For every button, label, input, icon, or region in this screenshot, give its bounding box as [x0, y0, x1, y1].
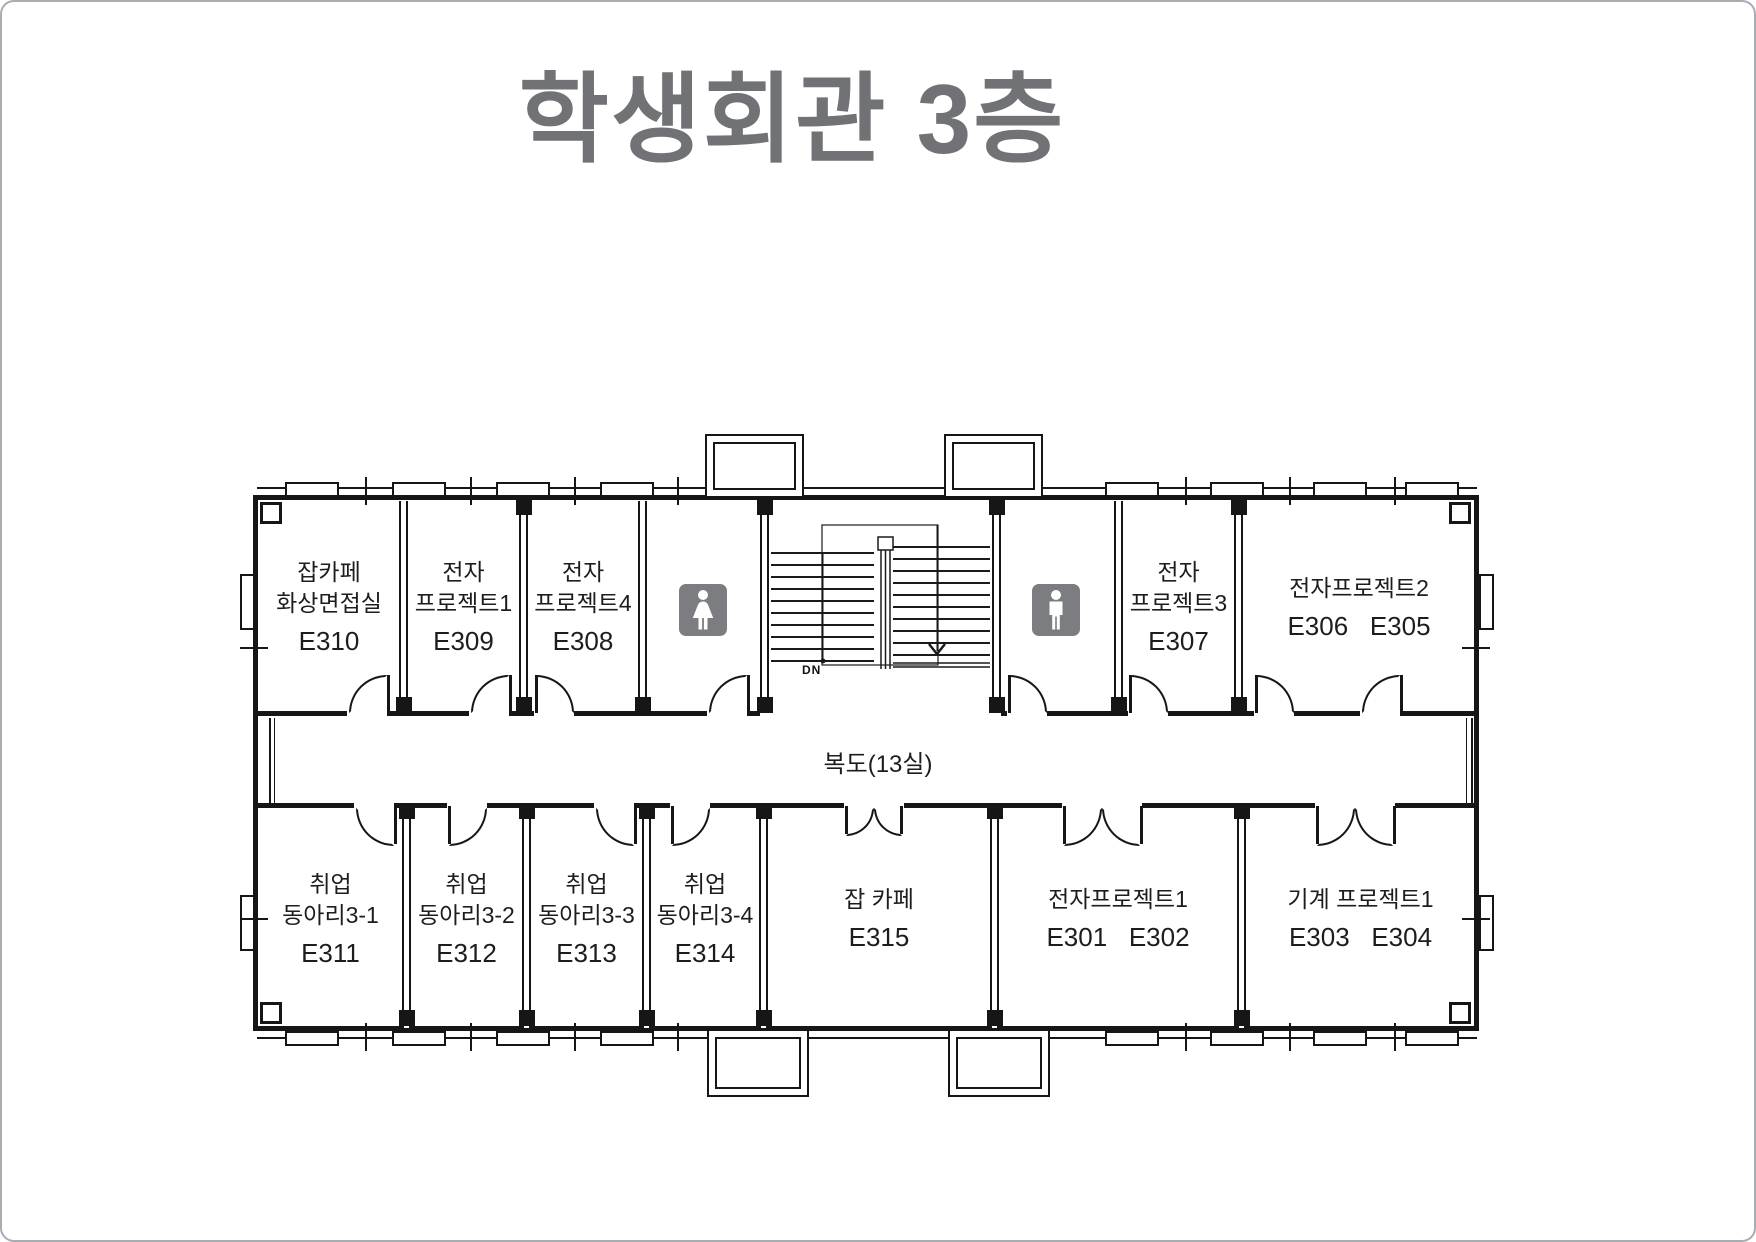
- column-block: [396, 697, 412, 713]
- room-number: E309: [433, 625, 494, 657]
- column-block: [989, 499, 1005, 515]
- interior-wall: [642, 809, 651, 1028]
- male-restroom-icon: [1032, 584, 1080, 641]
- column-block: [757, 499, 773, 515]
- wall-tick: [1289, 1023, 1291, 1051]
- female-restroom-icon: [679, 584, 727, 641]
- room-number: E315: [849, 921, 910, 953]
- column-block: [519, 803, 535, 819]
- door-leaf: [1008, 675, 1011, 713]
- window: [496, 1031, 550, 1046]
- door-leaf: [394, 806, 397, 844]
- column-block: [1231, 697, 1247, 713]
- bay-inner: [715, 1037, 801, 1089]
- room-number: E301 E302: [1046, 921, 1189, 953]
- column-block: [519, 1010, 535, 1026]
- stairs-down-label: DN: [802, 663, 821, 677]
- room-label: 취업: [684, 869, 726, 900]
- interior-wall: [759, 809, 768, 1028]
- corner-block: [260, 1002, 282, 1024]
- window: [1210, 1031, 1264, 1046]
- window: [1105, 482, 1159, 497]
- wall-tick: [574, 1023, 576, 1051]
- corner-block: [1449, 1002, 1471, 1024]
- wall-tick: [1462, 918, 1490, 920]
- column-block: [399, 1010, 415, 1026]
- column-block: [399, 803, 415, 819]
- window: [1313, 482, 1367, 497]
- room-label: 전자: [562, 557, 604, 588]
- floor-plan-canvas: 학생회관 3층 잡카페 화상면접실 E310 전자 프로젝트1 E309 전자 …: [0, 0, 1756, 1242]
- door-leaf: [1316, 806, 1319, 844]
- interior-wall: [1234, 501, 1243, 713]
- room-number: E310: [299, 625, 360, 657]
- door-leaf: [747, 675, 750, 713]
- room-e314: 취업 동아리3-4 E314: [651, 809, 759, 1028]
- room-number: E303 E304: [1289, 921, 1432, 953]
- bay-inner: [713, 442, 796, 490]
- room-label: 프로젝트1: [415, 588, 512, 619]
- interior-wall: [402, 809, 411, 1028]
- window: [392, 482, 446, 497]
- window: [392, 1031, 446, 1046]
- top-left-bay: [705, 434, 804, 498]
- window: [600, 1031, 654, 1046]
- wall-tick: [365, 1023, 367, 1051]
- wall-tick: [1394, 477, 1396, 505]
- wall: [274, 718, 275, 804]
- room-label: 잡 카페: [844, 884, 914, 915]
- window: [1313, 1031, 1367, 1046]
- room-label: 동아리3-2: [418, 900, 515, 931]
- bay-inner: [952, 442, 1035, 490]
- room-label: 화상면접실: [276, 588, 382, 619]
- column-block: [516, 499, 532, 515]
- wall-tick: [470, 477, 472, 505]
- room-label: 전자: [442, 557, 484, 588]
- floor-plan: 잡카페 화상면접실 E310 전자 프로젝트1 E309 전자 프로젝트4 E3…: [2, 2, 1756, 1242]
- interior-wall: [1237, 809, 1246, 1028]
- window: [1405, 482, 1459, 497]
- room-label: 취업: [309, 869, 351, 900]
- room-number: E307: [1148, 625, 1209, 657]
- wall-tick: [1185, 477, 1187, 505]
- room-label: 전자프로젝트2: [1289, 573, 1429, 604]
- interior-wall: [760, 501, 769, 713]
- bay-inner: [956, 1037, 1042, 1089]
- room-label: 취업: [565, 869, 607, 900]
- window: [496, 482, 550, 497]
- wall-tick: [1289, 477, 1291, 505]
- window: [1479, 895, 1494, 951]
- door-leaf: [1255, 675, 1258, 713]
- door-leaf: [634, 806, 637, 844]
- door-leaf: [448, 806, 451, 844]
- door-leaf: [845, 806, 848, 834]
- bottom-right-bay: [948, 1029, 1050, 1097]
- room-e312: 취업 동아리3-2 E312: [411, 809, 522, 1028]
- wall-tick: [240, 918, 268, 920]
- door-leaf: [1140, 806, 1143, 844]
- wall-tick: [677, 1023, 679, 1051]
- window: [240, 574, 255, 630]
- room-label: 프로젝트3: [1130, 588, 1227, 619]
- interior-wall: [992, 501, 1001, 713]
- room-label: 동아리3-1: [282, 900, 379, 931]
- room-label: 전자프로젝트1: [1048, 884, 1188, 915]
- column-block: [639, 803, 655, 819]
- corner-block: [260, 502, 282, 524]
- window: [285, 1031, 339, 1046]
- room-e315: 잡 카페 E315: [768, 809, 990, 1028]
- top-right-bay: [944, 434, 1043, 498]
- interior-wall: [1114, 501, 1123, 713]
- wall-tick: [574, 477, 576, 505]
- room-e303-e304: 기계 프로젝트1 E303 E304: [1246, 809, 1475, 1028]
- room-number: E311: [301, 937, 360, 969]
- interior-wall: [519, 501, 528, 713]
- column-block: [756, 803, 772, 819]
- column-block: [987, 803, 1003, 819]
- window: [285, 482, 339, 497]
- room-number: E312: [436, 937, 497, 969]
- window: [1479, 574, 1494, 630]
- door-leaf: [900, 806, 903, 834]
- wall: [269, 718, 271, 804]
- wall: [1466, 718, 1467, 804]
- corridor-label: 복도(13실): [824, 744, 933, 779]
- room-label: 기계 프로젝트1: [1287, 884, 1433, 915]
- door-leaf: [509, 675, 512, 713]
- interior-wall: [638, 501, 647, 713]
- door-leaf: [1129, 675, 1132, 713]
- interior-wall: [990, 809, 999, 1028]
- interior-wall: [522, 809, 531, 1028]
- bottom-left-bay: [707, 1029, 809, 1097]
- door-leaf: [1063, 806, 1066, 844]
- column-block: [1234, 803, 1250, 819]
- room-e301-e302: 전자프로젝트1 E301 E302: [999, 809, 1237, 1028]
- room-number: E313: [556, 937, 617, 969]
- column-block: [756, 1010, 772, 1026]
- column-block: [757, 697, 773, 713]
- door-arc: [1009, 675, 1047, 713]
- wall-tick: [240, 647, 268, 649]
- room-number: E308: [553, 625, 614, 657]
- window: [1210, 482, 1264, 497]
- door-leaf: [387, 675, 390, 713]
- stairwell: [769, 501, 992, 711]
- window: [1405, 1031, 1459, 1046]
- room-label: 프로젝트4: [534, 588, 631, 619]
- column-block: [635, 697, 651, 713]
- window: [600, 482, 654, 497]
- room-label: 동아리3-4: [657, 900, 754, 931]
- column-block: [516, 697, 532, 713]
- wall: [1471, 718, 1473, 804]
- column-block: [1234, 1010, 1250, 1026]
- room-label: 취업: [445, 869, 487, 900]
- interior-wall: [399, 501, 408, 713]
- column-block: [1231, 499, 1247, 515]
- door-arc: [709, 675, 747, 713]
- column-block: [1111, 697, 1127, 713]
- wall-tick: [470, 1023, 472, 1051]
- room-number: E314: [675, 937, 736, 969]
- door-leaf: [671, 806, 674, 844]
- wall-tick: [677, 477, 679, 505]
- window: [240, 895, 255, 951]
- door-leaf: [1393, 806, 1396, 844]
- column-block: [989, 697, 1005, 713]
- column-block: [987, 1010, 1003, 1026]
- room-label: 잡카페: [297, 557, 360, 588]
- door-leaf: [535, 675, 538, 713]
- window: [1105, 1031, 1159, 1046]
- room-number: E306 E305: [1287, 610, 1430, 642]
- room-label: 전자: [1157, 557, 1199, 588]
- door-leaf: [1400, 675, 1403, 713]
- room-label: 동아리3-3: [538, 900, 635, 931]
- wall-tick: [1462, 647, 1490, 649]
- column-block: [639, 1010, 655, 1026]
- wall-tick: [1394, 1023, 1396, 1051]
- corner-block: [1449, 502, 1471, 524]
- wall-tick: [1185, 1023, 1187, 1051]
- wall-tick: [365, 477, 367, 505]
